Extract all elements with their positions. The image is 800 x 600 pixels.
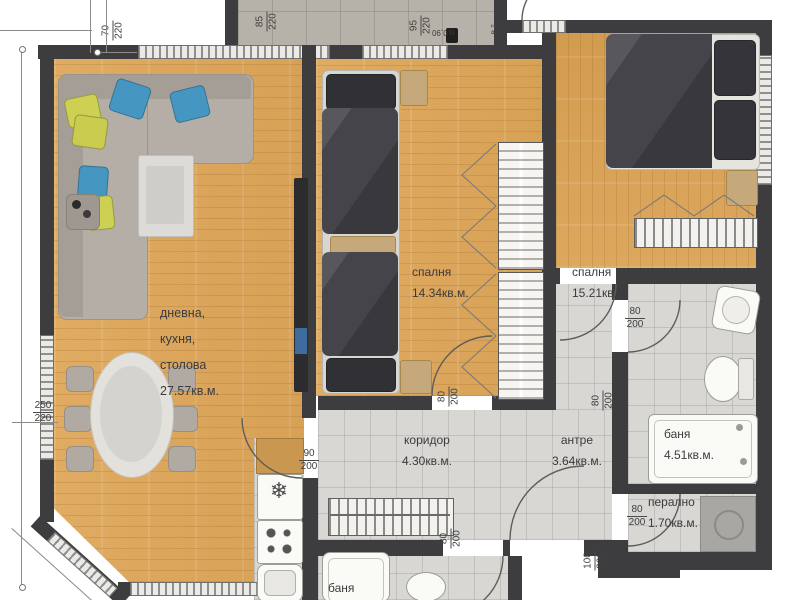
sofa-pillow-yellow xyxy=(71,114,109,150)
dimension-marker xyxy=(94,49,101,56)
dimension-line xyxy=(90,0,91,53)
kitchen-sink-basin xyxy=(264,570,296,596)
wall xyxy=(330,45,362,59)
dimension-line xyxy=(0,30,92,31)
coffee-table-top xyxy=(146,166,184,224)
window xyxy=(40,335,54,460)
wardrobe xyxy=(498,272,544,400)
room-label-bathroom2: баня xyxy=(328,578,354,599)
toilet-tank xyxy=(738,358,754,400)
wall xyxy=(556,268,560,284)
dimension-label: 80200 xyxy=(618,306,652,331)
wall xyxy=(756,185,772,570)
wall xyxy=(302,478,318,600)
floor-plan: ❄ xyxy=(0,0,800,600)
window xyxy=(130,582,262,596)
dimension-label: 85220 xyxy=(255,5,280,39)
dimension-line xyxy=(95,52,137,53)
dining-chair xyxy=(64,406,92,432)
bed-duvet xyxy=(322,108,398,234)
closet-radiator xyxy=(634,218,758,248)
terrace-wall xyxy=(225,0,238,45)
wall xyxy=(118,582,130,596)
corridor-wardrobe-rail xyxy=(330,514,450,516)
wall xyxy=(616,268,772,284)
wall xyxy=(566,20,772,33)
wall xyxy=(40,460,54,522)
bed-pillow xyxy=(714,40,756,96)
room-label-antre: антре 3.64кв.м. xyxy=(552,430,602,472)
dimension-label: 95220 xyxy=(409,9,434,43)
wall xyxy=(507,20,522,33)
dimension-line xyxy=(12,422,58,423)
side-table-decor xyxy=(72,200,81,209)
dimension-label: 90200 xyxy=(292,448,326,473)
dining-chair xyxy=(66,446,94,472)
wall xyxy=(448,45,556,59)
bed-duvet xyxy=(322,252,398,356)
room-label-bedroom1: спалня 14.34кв.м. xyxy=(412,262,469,304)
dimension-label: 80200 xyxy=(439,522,464,556)
wall xyxy=(598,556,680,578)
dimension-label: 80200 xyxy=(620,504,654,529)
wall xyxy=(40,45,54,335)
faucet xyxy=(740,458,747,465)
dining-chair xyxy=(66,366,94,392)
stove-icon xyxy=(262,525,296,557)
dimension-label: 100200 xyxy=(583,544,608,578)
window xyxy=(522,20,566,33)
toilet xyxy=(704,356,742,402)
snowflake-icon: ❄ xyxy=(257,478,301,514)
room-label-bathroom: баня 4.51кв.м. xyxy=(664,424,714,466)
tv-accent xyxy=(295,328,307,354)
bed-pillow xyxy=(326,358,396,392)
bed-pillow xyxy=(714,100,756,160)
parapet-note: п.0,90 xyxy=(432,28,454,37)
room-label-living: дневна, кухня, столова 27.57кв.м. xyxy=(160,300,219,404)
dimension-marker xyxy=(19,46,26,53)
dimension-marker xyxy=(19,584,26,591)
nightstand xyxy=(400,360,432,394)
dining-table-top xyxy=(100,366,162,462)
vt-note: в.т. xyxy=(489,23,498,34)
corridor-wardrobe xyxy=(328,498,454,536)
room-label-laundry: перално 1.70кв.м. xyxy=(648,492,698,534)
wall xyxy=(508,556,522,600)
dining-chair xyxy=(168,446,196,472)
faucet xyxy=(736,424,743,431)
dimension-label: 70220 xyxy=(101,14,126,48)
tv-unit xyxy=(294,178,308,392)
wall xyxy=(542,33,556,410)
room-label-corridor: коридор 4.30кв.м. xyxy=(402,430,452,472)
wardrobe xyxy=(498,142,544,270)
nightstand xyxy=(726,170,758,206)
wall xyxy=(612,352,628,494)
washing-machine-door xyxy=(714,510,744,540)
window xyxy=(362,45,448,59)
dimension-label: 80200 xyxy=(437,380,462,414)
wall xyxy=(503,540,510,556)
dimension-line xyxy=(106,0,107,53)
bed-pillow xyxy=(326,74,396,110)
dimension-line xyxy=(21,48,22,588)
side-table-decor xyxy=(83,210,91,218)
nightstand xyxy=(400,70,428,106)
wall xyxy=(318,396,432,410)
room-label-bedroom2: спалня 15.21кв.м. xyxy=(572,262,629,304)
dining-chair xyxy=(170,406,198,432)
dimension-label: 80200 xyxy=(591,384,616,418)
toilet xyxy=(406,572,446,600)
bed-duvet xyxy=(606,34,712,168)
